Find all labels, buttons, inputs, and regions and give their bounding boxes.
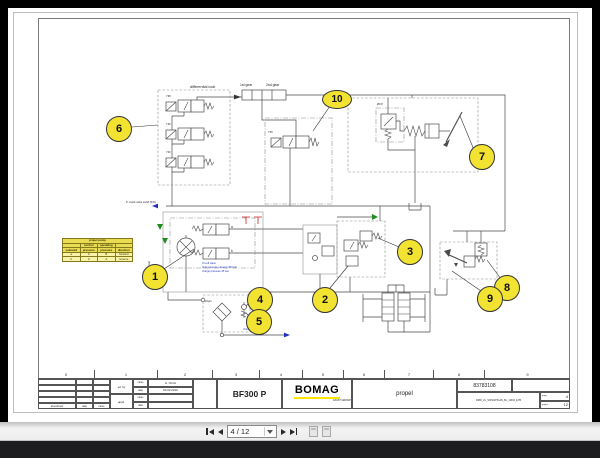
callout-number: 7	[479, 151, 485, 163]
label-2nd-gear: 2nd gear	[266, 84, 279, 88]
callout-9: 9	[477, 286, 503, 312]
callout-number: 10	[331, 94, 342, 105]
grid-ref: 2	[158, 370, 213, 379]
table-cell: 0	[80, 257, 98, 262]
callout-7: 7	[469, 144, 495, 170]
callout-10: 10	[322, 90, 352, 109]
continuous-view-icon[interactable]	[322, 426, 331, 437]
label-differential-lock: differential lock	[190, 85, 215, 89]
first-page-icon	[206, 428, 208, 435]
field-label-date: date	[133, 387, 148, 395]
sheet-label: page	[542, 395, 547, 397]
callout-number: 6	[116, 123, 122, 135]
grid-reference-row: 0 1 2 3 4 5 6 7 8 9	[38, 370, 570, 379]
pdf-viewer-window: differential lock 1st gear 2nd gear Y38 …	[0, 0, 600, 458]
sheet-cell: page 4	[540, 392, 570, 401]
callout-5: 5	[246, 309, 272, 335]
table-cell: reverse	[115, 257, 133, 262]
callout-number: 8	[504, 282, 510, 294]
chevron-down-icon	[267, 430, 273, 434]
grid-ref: 1	[95, 370, 158, 379]
label-port-b: b	[231, 250, 233, 254]
grid-ref: 0	[38, 370, 95, 379]
previous-page-icon	[218, 429, 223, 435]
label-check-valve-note: P: check valve on/off (S/N)	[126, 202, 156, 205]
divider	[264, 427, 265, 436]
callout-1: 1	[142, 264, 168, 290]
field-label-date: date	[133, 402, 148, 410]
single-page-view-icon[interactable]	[309, 426, 318, 437]
grid-ref: 9	[485, 370, 570, 379]
edby-name-value: H. Christ	[148, 379, 193, 387]
bottom-dark-bar	[0, 441, 600, 458]
appd-name-value	[148, 394, 193, 402]
table-cell: A	[98, 257, 116, 262]
callout-3: 3	[397, 239, 423, 265]
propel-pump-table: propel pump control operating solenoid p…	[62, 238, 133, 262]
callout-2: 2	[312, 287, 338, 313]
empty-cell	[512, 379, 570, 392]
label-filter-micron: 10μm	[205, 301, 212, 304]
first-page-button[interactable]	[206, 428, 214, 435]
hydraulic-schematic-drawing	[0, 0, 600, 424]
label-solenoid-y39: Y39	[166, 124, 171, 127]
fayat-group-text: FAYAT GROUP	[333, 399, 351, 403]
field-label-name: name	[133, 379, 148, 387]
table-cell: b	[63, 257, 81, 262]
appd-date-value	[148, 402, 193, 410]
last-page-icon	[296, 428, 298, 435]
edby-date-value: 04.02.2010	[148, 387, 193, 395]
page-navigation: 4 / 12	[206, 425, 331, 438]
drawing-description: propel	[352, 379, 457, 409]
last-page-button[interactable]	[290, 428, 298, 435]
bomag-logo-text: BOMAG	[295, 385, 339, 396]
grid-ref: 7	[385, 370, 434, 379]
field-label-name: name	[133, 394, 148, 402]
revision-table: amendment date name	[38, 379, 110, 409]
previous-page-button[interactable]	[218, 429, 223, 435]
sheet-value: 4	[566, 394, 568, 399]
revision-label-amendment: amendment	[38, 403, 76, 409]
last-page-icon	[290, 429, 295, 435]
bomag-logo: BOMAG FAYAT GROUP	[282, 379, 352, 409]
revision-label-date: date	[76, 403, 93, 409]
revision-label-name: name	[93, 403, 110, 409]
label-orifice: Ø0.8	[377, 104, 383, 107]
pdf-toolbar: 4 / 12	[0, 422, 600, 441]
label-port-a: a	[231, 226, 233, 230]
label-solenoid-y38: Y38	[166, 96, 171, 99]
label-1st-gear: 1st gear	[240, 84, 252, 88]
title-block: 0 1 2 3 4 5 6 7 8 9 amendment date name …	[38, 370, 570, 409]
next-page-button[interactable]	[281, 429, 286, 435]
grid-ref: 6	[344, 370, 385, 379]
sheets-cell: pages 12	[540, 401, 570, 410]
next-page-icon	[281, 429, 286, 435]
empty-cell	[193, 379, 217, 409]
callout-number: 2	[322, 294, 328, 306]
callout-number: 3	[407, 246, 413, 258]
pump-note-line-3: charge pressure 25 bar	[202, 271, 229, 274]
grid-ref: 8	[434, 370, 485, 379]
callout-6: 6	[106, 116, 132, 142]
sheets-value: 12	[564, 402, 568, 407]
document-number: 83783108	[457, 379, 512, 392]
edby-label: ed. by	[110, 379, 133, 394]
appd-label: appd.	[110, 394, 133, 409]
label-solenoid-y40: Y40	[166, 152, 171, 155]
file-reference: DRW_UL_SCHALTPLAN_BL_11304_EYB	[457, 392, 540, 409]
callout-number: 1	[152, 271, 158, 283]
callout-number: 5	[256, 316, 262, 328]
grid-ref: 5	[303, 370, 344, 379]
page-number-value: 4 / 12	[231, 427, 264, 436]
grid-ref: 4	[260, 370, 303, 379]
label-solenoid-y50: Y50	[268, 132, 273, 135]
sheets-label: pages	[542, 404, 548, 406]
model-number: BF300 P	[217, 379, 282, 409]
grid-ref: 3	[213, 370, 260, 379]
callout-number: 4	[257, 294, 263, 306]
callout-number: 9	[487, 293, 493, 305]
first-page-icon	[209, 429, 214, 435]
page-number-input[interactable]: 4 / 12	[227, 425, 277, 438]
